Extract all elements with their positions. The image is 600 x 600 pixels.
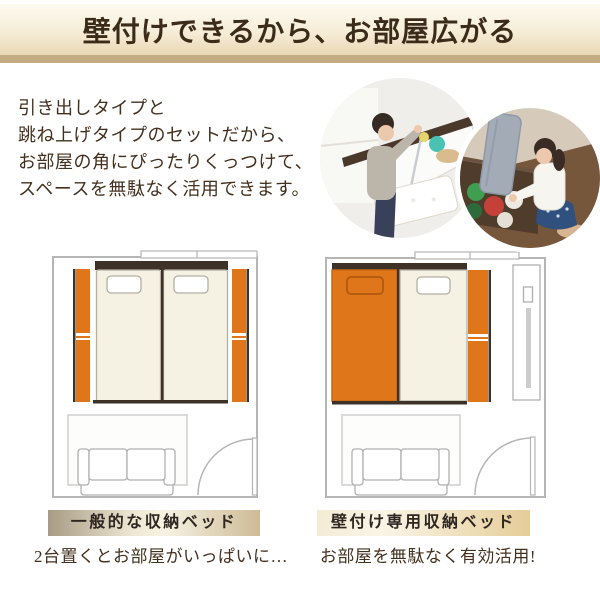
floorplan-ordinary xyxy=(50,248,260,500)
intro-paragraph: 引き出しタイプと 跳ね上げタイプのセットだから、 お部屋の角にぴったりくっつけて… xyxy=(18,95,318,203)
caption-wallfit-bed: お部屋を無駄なく有効活用! xyxy=(308,542,548,567)
pulled-drawer xyxy=(468,341,488,402)
drawer-item-darkgreen xyxy=(466,203,482,219)
cabinet-handle xyxy=(524,287,533,302)
skirt-dot xyxy=(556,214,559,217)
banner-gradient: 壁付けできるから、お部屋広がる xyxy=(0,4,600,55)
liftup-bed-highlight xyxy=(332,270,397,401)
window xyxy=(415,252,519,259)
drawer-gap-line xyxy=(232,336,246,338)
liftup-bed-photo xyxy=(320,78,480,238)
door-leaf xyxy=(531,437,536,495)
sofa xyxy=(352,449,449,495)
drawer-item-red xyxy=(484,196,504,216)
storage-basket xyxy=(436,149,460,163)
sofa-arm xyxy=(352,449,363,485)
pillow xyxy=(174,276,208,293)
drawer-bed-photo xyxy=(460,108,600,248)
bed-frame-divider xyxy=(161,261,164,403)
drawer-gap-line xyxy=(468,337,488,339)
girl-face xyxy=(536,148,552,164)
woman-hand xyxy=(414,125,422,133)
pulled-drawer xyxy=(232,340,246,402)
woman-face xyxy=(378,125,394,141)
pillow xyxy=(107,276,141,293)
sofa-arm xyxy=(78,449,89,485)
floorplan-wallfit xyxy=(324,248,548,500)
label-ordinary-bed: 一般的な収納ベッド xyxy=(48,510,260,536)
banner-title: 壁付けできるから、お部屋広がる xyxy=(83,10,517,50)
caption-ordinary-bed: 2台置くとお部屋がいっぱいに… xyxy=(34,542,274,567)
drawer-frame-left xyxy=(73,269,76,402)
intro-line: お部屋の角にぴったりくっつけて、 xyxy=(18,149,318,176)
sofa xyxy=(78,449,175,495)
window xyxy=(141,251,257,258)
bed-frame-divider xyxy=(397,263,400,403)
skirt-dot xyxy=(565,207,568,210)
storage-item-green xyxy=(429,136,445,152)
door-leaf xyxy=(253,438,258,495)
intro-line: 引き出しタイプと xyxy=(18,95,318,122)
pulled-drawer xyxy=(232,269,246,333)
pulled-drawer xyxy=(468,270,488,334)
pulled-drawer xyxy=(76,269,90,333)
girl-hand xyxy=(509,194,517,202)
bed-footboard xyxy=(332,401,467,405)
drawer-item-bag xyxy=(497,212,513,228)
sofa-cushion xyxy=(401,449,439,480)
sofa-cushion xyxy=(127,449,165,480)
top-banner: 壁付けできるから、お部屋広がる xyxy=(0,0,600,63)
bed-footboard xyxy=(93,400,228,404)
drawer-gap-line xyxy=(76,336,90,338)
pulled-drawer xyxy=(76,340,90,402)
closet-cabinet xyxy=(513,265,540,400)
woman-sweater xyxy=(367,146,396,200)
banner-bottom-strip xyxy=(0,55,600,63)
intro-line: スペースを無駄なく活用できます。 xyxy=(18,176,318,203)
liftup-bed-photo-scene xyxy=(320,78,480,238)
sofa-cushion xyxy=(89,449,127,480)
drawer-frame-right xyxy=(247,269,250,402)
pillow xyxy=(417,277,450,294)
sofa-cushion xyxy=(363,449,401,480)
drawer-bed-photo-scene xyxy=(460,108,600,248)
intro-line: 跳ね上げタイプのセットだから、 xyxy=(18,122,318,149)
drawer-frame-right xyxy=(489,270,492,402)
cabinet-inner-bar xyxy=(526,308,531,388)
label-wallfit-bed: 壁付け専用収納ベッド xyxy=(317,510,530,536)
